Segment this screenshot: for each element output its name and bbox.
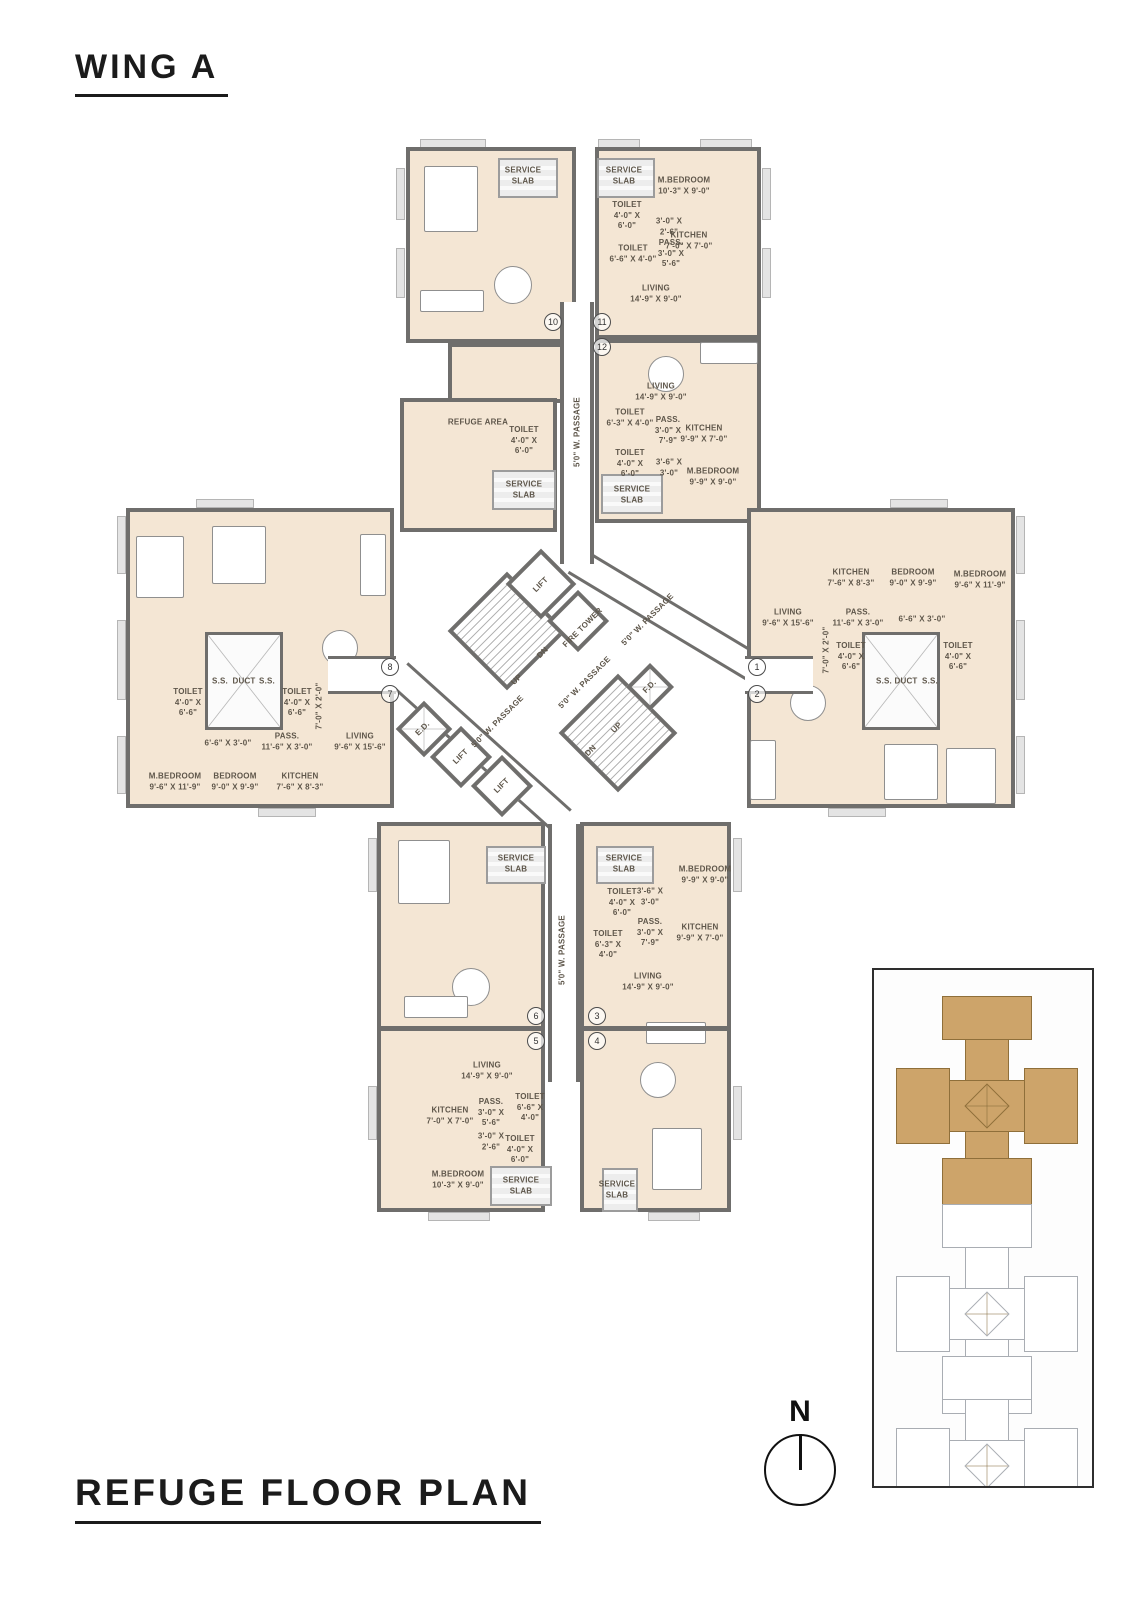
room-label: LIVING 14'-9" X 9'-0" [461,1060,513,1081]
room-label: M.BEDROOM 9'-9" X 9'-0" [687,466,739,487]
wall-block [582,1026,729,1031]
ledge-block [196,499,254,508]
room-label: PASS. 11'-6" X 3'-0" [261,731,312,752]
room-label: 5'0" W. PASSAGE [573,397,584,467]
room-label: DUCT [232,677,255,688]
refuge-floor-plan-sheet: WING A SERVICE SLABSERVICE SLABM.BEDROOM… [0,0,1143,1600]
room-label: TOILET 4'-0" X 6'-6" [836,641,866,673]
ledge-block [396,168,405,220]
room-label: SERVICE SLAB [599,1179,635,1200]
room-label: M.BEDROOM 10'-3" X 9'-0" [658,175,710,196]
keyplan-highlighted-footprint [1024,1068,1078,1144]
furniture [652,1128,702,1190]
room-label: PASS. 3'-0" X 5'-6" [478,1097,504,1129]
unit-marker-5: 5 [527,1032,545,1050]
room-label: KITCHEN 9'-9" X 7'-0" [681,423,728,444]
ledge-block [1016,516,1025,574]
ledge-block [733,1086,742,1140]
room-label: TOILET 6'-6" X 4'-0" [515,1092,545,1124]
room-label: 3'-6" X 3'-0" [637,886,663,907]
unit-marker-11: 11 [593,313,611,331]
keyplan-highlighted-footprint [942,1158,1032,1206]
key-plan [872,968,1094,1488]
ledge-block [368,1086,377,1140]
unit-marker-8: 8 [381,658,399,676]
keyplan-outline-footprint [942,1356,1032,1400]
room-label: PASS. 3'-0" X 5'-6" [658,238,684,270]
room-label: 5'0" W. PASSAGE [470,694,527,751]
room-label: 6'-6" X 3'-0" [899,615,946,626]
room-label: TOILET 6'-3" X 4'-0" [607,407,654,428]
keyplan-highlighted-footprint [942,996,1032,1040]
keyplan-outline-footprint [942,1204,1032,1248]
furniture [404,996,468,1018]
unit-marker-1: 1 [748,658,766,676]
north-needle [799,1434,802,1470]
keyplan-highlighted-footprint [896,1068,950,1144]
unit-marker-12: 12 [593,338,611,356]
furniture [360,534,386,596]
unit-marker-6: 6 [527,1007,545,1025]
furniture [424,166,478,232]
room-label: S.S. [259,677,275,688]
room-label: M.BEDROOM 9'-6" X 11'-9" [954,569,1006,590]
ledge-block [828,808,886,817]
room-label: SERVICE SLAB [614,484,650,505]
furniture [884,744,938,800]
keyplan-outline-footprint [1024,1276,1078,1352]
room-label: TOILET 4'-0" X 6'-0" [607,887,637,919]
room-label: LIVING 14'-9" X 9'-0" [635,381,687,402]
furniture [398,840,450,904]
furniture [136,536,184,598]
room-label: 3'-0" X 2'-6" [478,1131,504,1152]
room-label: KITCHEN 9'-9" X 7'-0" [677,922,724,943]
room-label: 7'-0" X 2'-0" [822,627,833,674]
room-label: PASS. 3'-0" X 7'-9" [655,415,681,447]
room-label: KITCHEN 7'-0" X 7'-0" [427,1105,474,1126]
room-label: SERVICE SLAB [498,853,534,874]
ledge-block [117,516,126,574]
north-label: N [789,1395,811,1429]
room-label: S.S. [876,677,892,688]
room-label: TOILET 4'-0" X 6'-0" [615,448,645,480]
unit-block [448,343,576,403]
ledge-block [648,1212,700,1221]
room-label: 5'0" W. PASSAGE [558,915,569,985]
room-label: REFUGE AREA [448,418,508,429]
plan-title: REFUGE FLOOR PLAN [75,1472,541,1524]
keyplan-outline-footprint [896,1428,950,1488]
room-label: M.BEDROOM 9'-6" X 11'-9" [149,771,201,792]
room-label: KITCHEN 7'-6" X 8'-3" [277,771,324,792]
unit-marker-4: 4 [588,1032,606,1050]
furniture [212,526,266,584]
room-label: TOILET 4'-0" X 6'-6" [282,687,312,719]
room-label: BEDROOM 9'-0" X 9'-9" [890,567,937,588]
ledge-block [368,838,377,892]
ledge-block [762,168,771,220]
room-label: TOILET 4'-0" X 6'-0" [509,425,539,457]
room-label: 6'-6" X 3'-0" [205,739,252,750]
room-label: SERVICE SLAB [506,479,542,500]
ledge-block [117,620,126,700]
keyplan-outline-footprint [1024,1428,1078,1488]
room-label: 7'-0" X 2'-0" [315,683,326,730]
room-label: S.S. [922,677,938,688]
ledge-block [258,808,316,817]
ledge-block [890,499,948,508]
room-label: LIVING 9'-6" X 15'-6" [334,731,386,752]
wall-block [379,1026,543,1031]
furniture [946,748,996,804]
room-label: LIVING 9'-6" X 15'-6" [762,607,814,628]
ledge-block [762,248,771,298]
room-label: TOILET 6'-3" X 4'-0" [593,929,623,961]
unit-marker-2: 2 [748,685,766,703]
furniture [640,1062,676,1098]
keyplan-outline-footprint [896,1276,950,1352]
room-label: TOILET 4'-0" X 6'-6" [173,687,203,719]
room-label: SERVICE SLAB [503,1175,539,1196]
room-label: KITCHEN 7'-6" X 8'-3" [828,567,875,588]
ledge-block [117,736,126,794]
furniture [750,740,776,800]
room-label: SERVICE SLAB [606,165,642,186]
room-label: LIVING 14'-9" X 9'-0" [622,971,674,992]
room-label: PASS. 11'-6" X 3'-0" [832,607,883,628]
ledge-block [428,1212,490,1221]
furniture [420,290,484,312]
furniture [700,342,758,364]
room-label: SERVICE SLAB [505,165,541,186]
room-label: 3'-6" X 3'-0" [656,457,682,478]
room-label: M.BEDROOM 9'-9" X 9'-0" [679,864,731,885]
ledge-block [733,838,742,892]
room-label: SERVICE SLAB [606,853,642,874]
room-label: S.S. [212,677,228,688]
ledge-block [1016,736,1025,794]
room-label: TOILET 6'-6" X 4'-0" [610,243,657,264]
room-label: M.BEDROOM 10'-3" X 9'-0" [432,1169,484,1190]
ledge-block [396,248,405,298]
room-label: PASS. 3'-0" X 7'-9" [637,917,663,949]
furniture [494,266,532,304]
unit-marker-10: 10 [544,313,562,331]
ledge-block [1016,620,1025,700]
room-label: LIVING 14'-9" X 9'-0" [630,283,682,304]
room-label: TOILET 4'-0" X 6'-6" [943,641,973,673]
room-label: TOILET 4'-0" X 6'-0" [505,1134,535,1166]
room-label: BEDROOM 9'-0" X 9'-9" [212,771,259,792]
unit-marker-3: 3 [588,1007,606,1025]
room-label: DUCT [894,677,917,688]
unit-marker-7: 7 [381,685,399,703]
room-label: TOILET 4'-0" X 6'-0" [612,200,642,232]
